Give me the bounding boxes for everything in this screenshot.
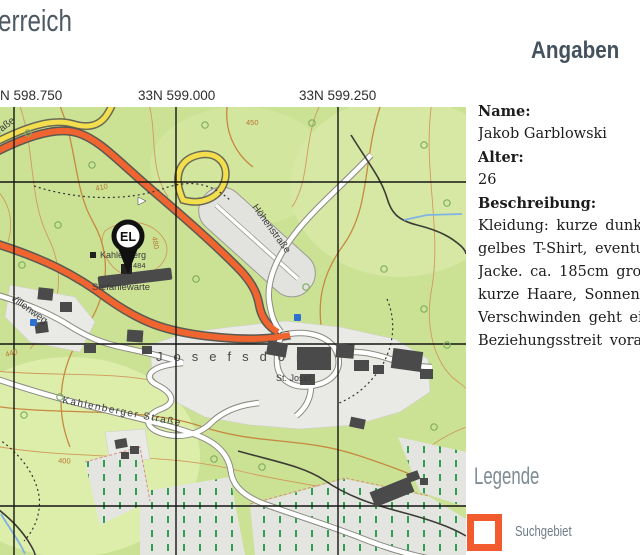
legend-item-label: Suchgebiet <box>515 524 572 540</box>
map-label-josefsdorf: Josefsdorf <box>156 349 326 364</box>
page: { "title_fragment": "erreich", "panel": … <box>0 0 640 555</box>
description-line: Kleidung: kurze dunkl <box>478 215 640 238</box>
name-value: Jakob Garblowski <box>478 123 640 146</box>
page-title: erreich <box>0 3 72 39</box>
topographic-map: 450 410 480 440 400 Kahlenberg 484 Stefa… <box>0 107 466 555</box>
grid-label-west: N 598.750 <box>0 88 62 103</box>
legend-title: Legende <box>474 463 539 491</box>
age-label: Alter: <box>478 146 640 169</box>
person-info-panel: Name: Jakob Garblowski Alter: 26 Beschre… <box>478 100 640 353</box>
map-label-st-josef: St. Josef <box>276 373 312 383</box>
el-marker-label: EL <box>120 230 136 244</box>
description-label: Beschreibung: <box>478 192 640 215</box>
map-label-elevation: 484 <box>133 261 146 270</box>
description-line: Jacke. ca. 185cm groß, <box>478 261 640 284</box>
description-line: Verschwinden geht ein <box>478 307 640 330</box>
description-line: gelbes T-Shirt, eventue <box>478 238 640 261</box>
name-label: Name: <box>478 100 640 123</box>
age-value: 26 <box>478 169 640 192</box>
map-label-stefaniewarte: Stefaniewarte <box>92 282 150 293</box>
description-line: Beziehungsstreit voraus <box>478 330 640 353</box>
grid-label-east: 33N 599.250 <box>299 88 376 103</box>
contour-label-450: 450 <box>246 118 259 127</box>
description-line: kurze Haare, Sonnenbr <box>478 284 640 307</box>
grid-label-center: 33N 599.000 <box>138 88 215 103</box>
search-area-swatch <box>467 514 502 551</box>
contour-label-400: 400 <box>58 456 71 466</box>
panel-heading: Angaben <box>531 37 619 65</box>
